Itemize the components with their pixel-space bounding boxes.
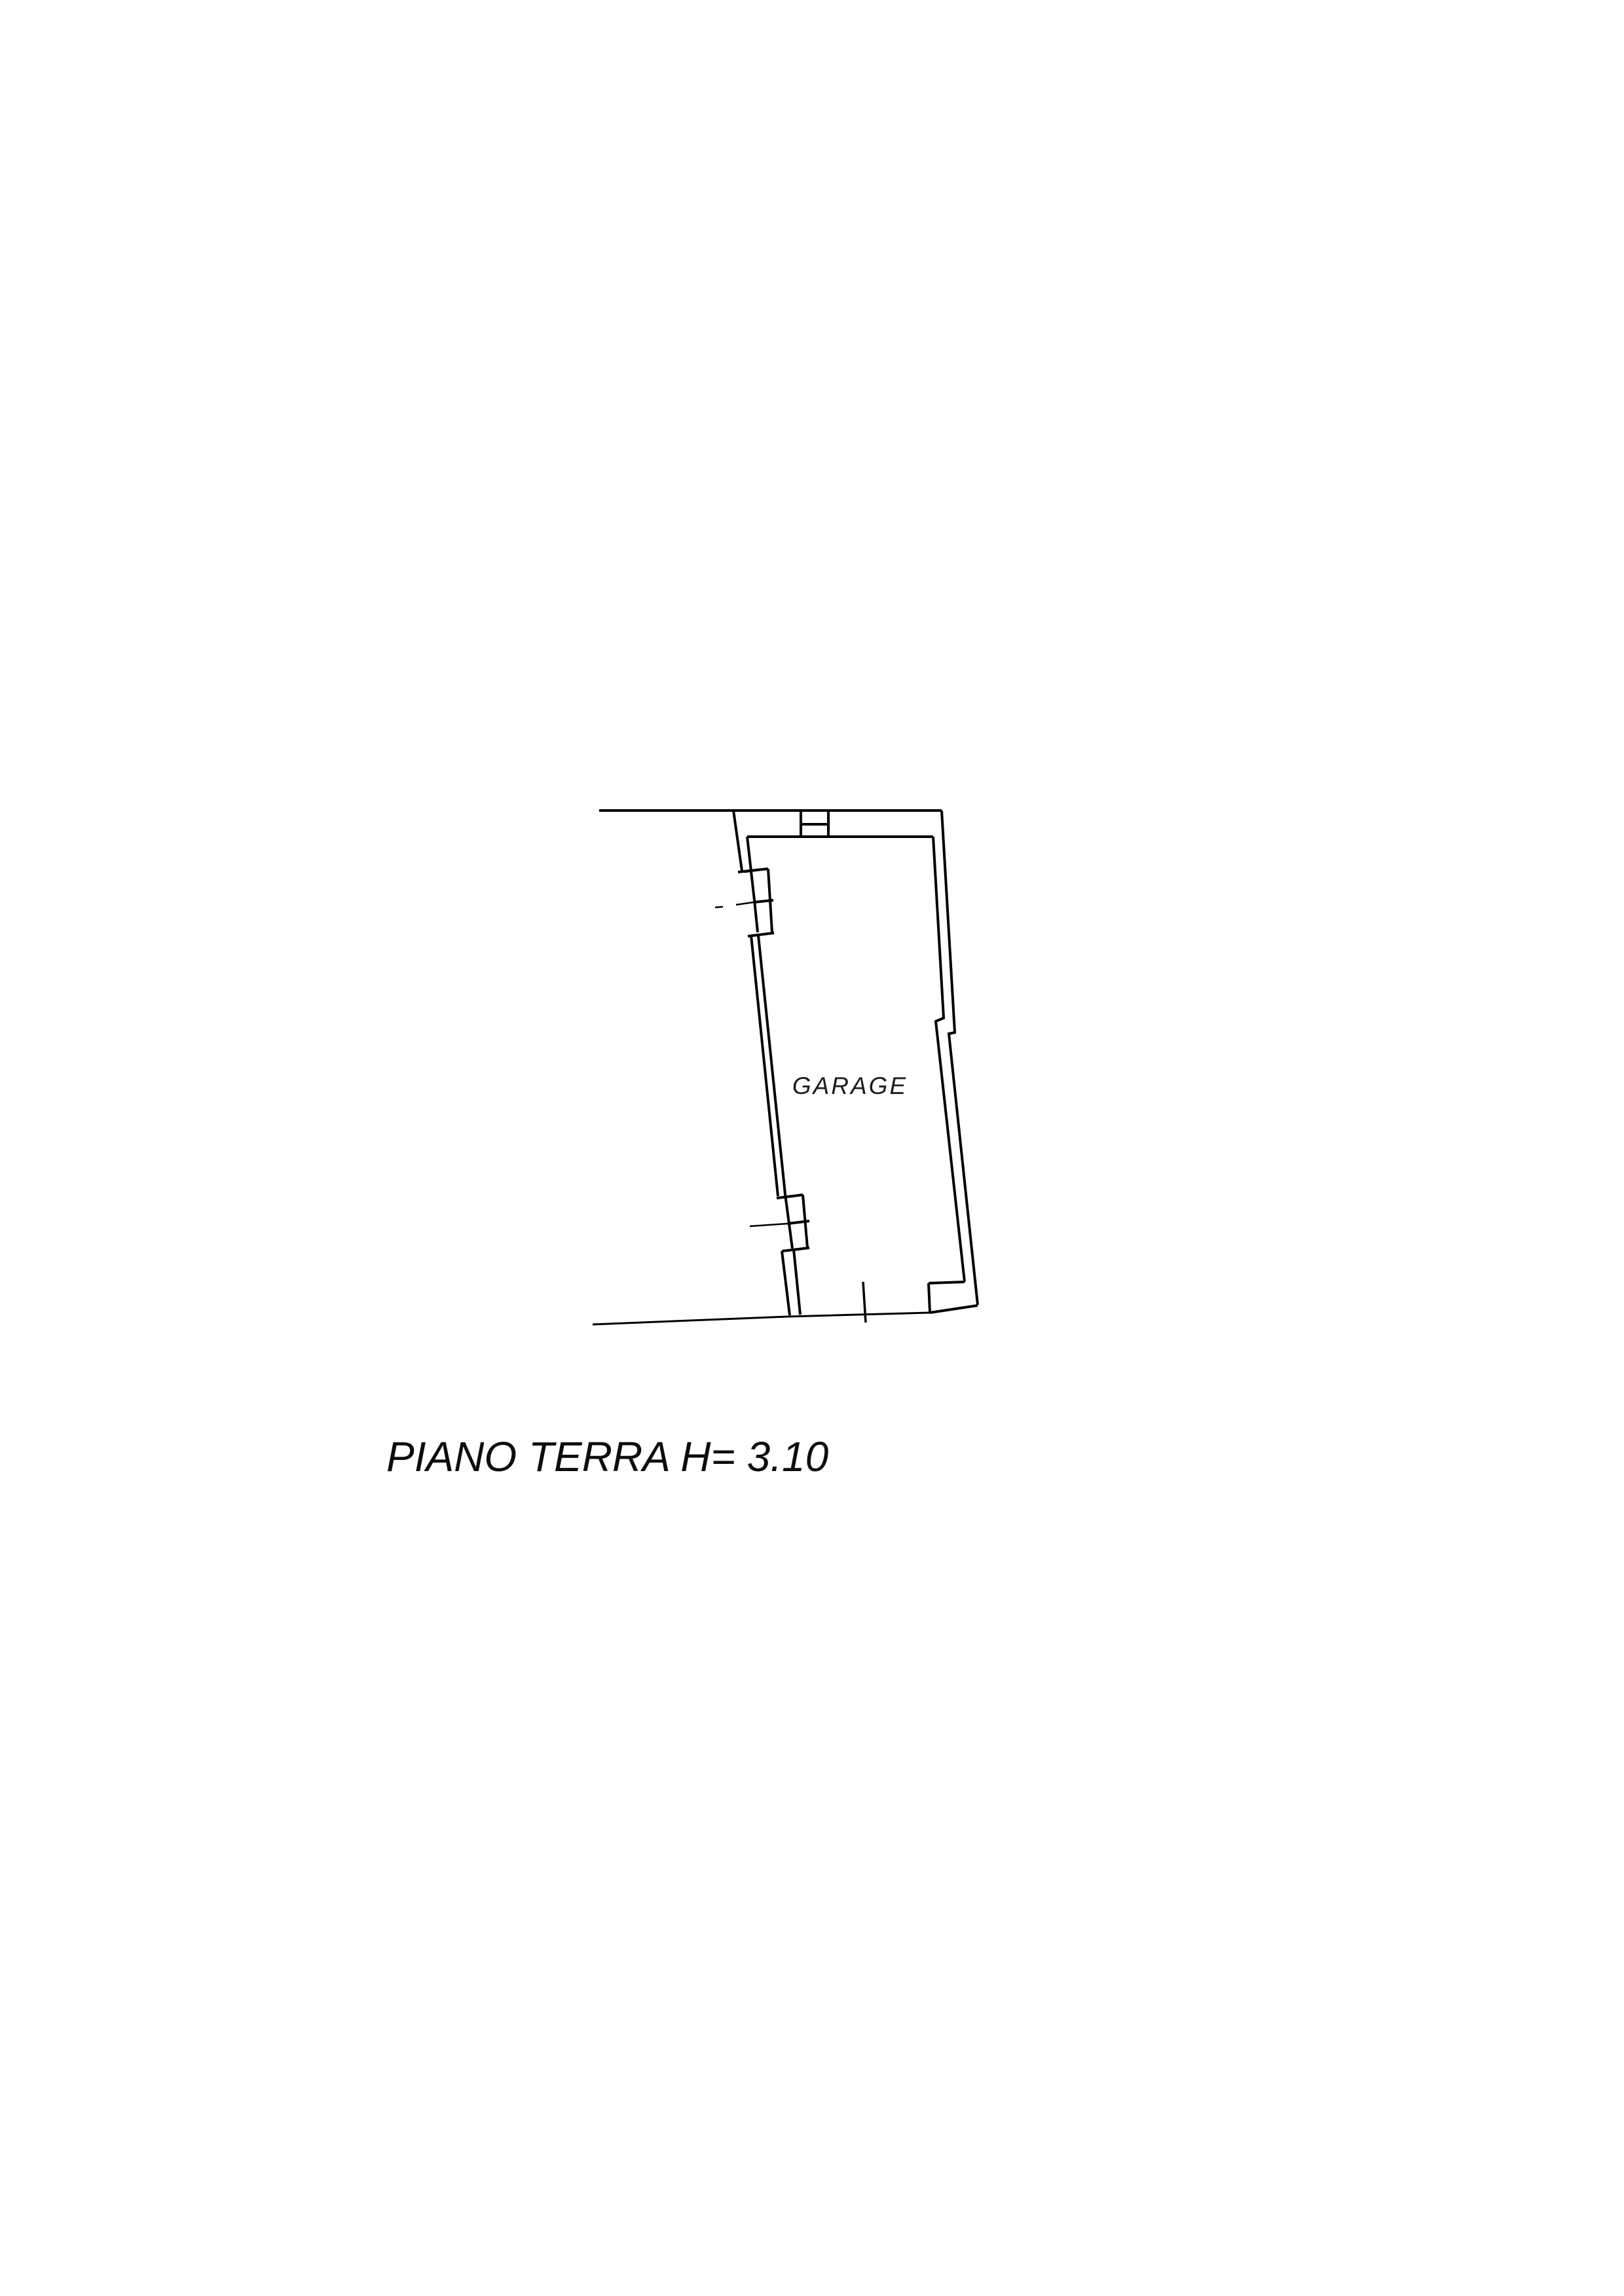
bottom-step-horizontal (929, 1282, 965, 1283)
bottom-step-vertical (929, 1283, 930, 1313)
window1-leader-dash (715, 907, 723, 907)
window2-recess-bottom (782, 1248, 809, 1251)
left-inner-wall-window2 (785, 1194, 792, 1248)
floor-caption: PIANO TERRA H= 3.10 (386, 1433, 829, 1480)
bottom-wall (930, 1305, 978, 1313)
terrain-line (593, 1313, 930, 1324)
right-inner-wall (933, 837, 965, 1282)
left-inner-wall-middle (758, 936, 785, 1194)
door-opening-tick (863, 1282, 866, 1322)
window2-leader (750, 1224, 788, 1226)
left-outer-wall-middle (751, 936, 778, 1196)
room-label-garage: GARAGE (792, 1072, 908, 1099)
left-inner-wall-lower (794, 1249, 800, 1315)
wall-lines (593, 811, 978, 1324)
window2-recess-top (777, 1195, 803, 1198)
floorplan-canvas: GARAGE PIANO TERRA H= 3.10 (0, 0, 1624, 2296)
left-outer-wall-lower (782, 1251, 790, 1315)
window1-leader (736, 902, 754, 905)
scanned-floorplan-page: GARAGE PIANO TERRA H= 3.10 (0, 0, 1624, 2296)
left-inner-wall-upper (747, 837, 758, 932)
left-outer-wall-upper (733, 811, 742, 871)
